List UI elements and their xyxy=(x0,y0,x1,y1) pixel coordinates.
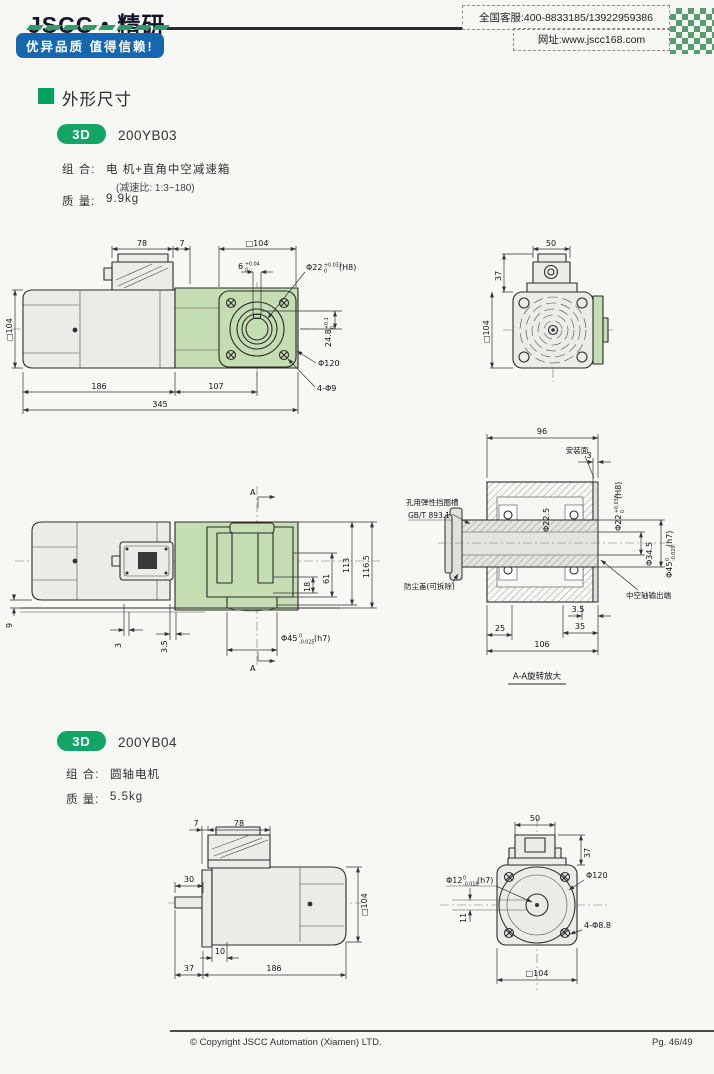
mass-label: 质 量: xyxy=(62,193,95,209)
dim-bolt-holes: 4-Φ8.8 xyxy=(584,921,611,930)
drawing-yb03-top: A A 18 61 113 116.5 9 3 3.5 Φ45 0 -0.025 xyxy=(5,470,390,700)
drawing-yb04-front: 50 37 Φ12 0 -0.018 (h7) Φ120 4-Φ8.8 11 □… xyxy=(430,812,680,1010)
dim-sq104: □104 xyxy=(526,969,549,978)
mass-value: 9.9kg xyxy=(106,193,139,205)
dim-10: 10 xyxy=(215,947,225,956)
dim-keyway: 6 xyxy=(238,262,243,271)
badge-3d: 3D xyxy=(57,731,106,751)
mass-label: 质 量: xyxy=(66,791,99,807)
copyright-text: © Copyright JSCC Automation (Xiamen) LTD… xyxy=(190,1037,382,1048)
model-name: 200YB03 xyxy=(118,128,177,143)
svg-text:0: 0 xyxy=(324,269,327,275)
dim-61: 61 xyxy=(322,574,331,584)
dim-sq104-left: □104 xyxy=(5,318,14,341)
svg-text:+0.04: +0.04 xyxy=(245,262,260,268)
badge-3d: 3D xyxy=(57,124,106,144)
svg-text:0: 0 xyxy=(463,876,466,882)
combo-value: 电 机+直角中空减速箱 xyxy=(106,161,230,177)
dim-30: 30 xyxy=(184,875,194,884)
dim-34-5: Φ34.5 xyxy=(645,542,654,566)
dim-3: 3 xyxy=(586,451,591,460)
svg-text:(h7): (h7) xyxy=(665,531,674,547)
dim-key-height: 24.8 +0.1 0 xyxy=(324,317,336,347)
checkerboard-pattern xyxy=(670,8,714,54)
mass-value: 5.5kg xyxy=(110,791,143,803)
section-mark-a-top: A xyxy=(250,488,256,497)
section-bullet xyxy=(38,88,54,104)
datasheet-page: JSCC・精研 优异品质 值得信赖! 全国客服:400-8833185/1392… xyxy=(0,0,714,1074)
dim-11: 11 xyxy=(459,913,468,923)
dim-113: 113 xyxy=(342,558,351,573)
footer-rule xyxy=(170,1030,714,1032)
svg-text:(h7): (h7) xyxy=(314,634,330,643)
dim-50: 50 xyxy=(530,814,540,823)
svg-text:0: 0 xyxy=(665,558,671,561)
hotline-box: 全国客服:400-8833185/13922959386 xyxy=(462,5,670,30)
dim-3-5: 3.5 xyxy=(572,605,585,614)
dim-bore: Φ22 xyxy=(306,263,322,272)
dim-37: 37 xyxy=(184,964,194,973)
dim-107: 107 xyxy=(208,382,223,391)
svg-text:-0.025: -0.025 xyxy=(299,640,314,646)
dim-flange-dia: Φ120 xyxy=(318,359,340,368)
dim-37: 37 xyxy=(583,848,592,858)
brand-dashes xyxy=(28,25,168,30)
dim-flange-dia: Φ120 xyxy=(586,871,608,880)
dim-3-5: 3.5 xyxy=(160,640,169,653)
dim-7: 7 xyxy=(179,239,184,248)
dim-sq104-top: □104 xyxy=(246,239,269,248)
dim-37: 37 xyxy=(494,271,503,281)
drawing-yb03-side: 78 7 □104 6 +0.04 0 Φ22 +0.033 0 (H8) 24… xyxy=(5,232,375,417)
section-mark-a-bottom: A xyxy=(250,664,256,673)
dim-186: 186 xyxy=(91,382,106,391)
dim-out-h7: Φ45 0 -0.025 (h7) xyxy=(665,531,677,578)
dim-shaft: Φ12 xyxy=(446,876,462,885)
dim-345: 345 xyxy=(152,400,167,409)
drawing-yb03-rear: 50 37 □104 xyxy=(460,232,640,417)
dim-186: 186 xyxy=(266,964,281,973)
dim-22-5: Φ22.5 xyxy=(542,508,551,532)
combo-label: 组 合: xyxy=(66,766,99,782)
svg-text:+0.1: +0.1 xyxy=(324,317,330,329)
svg-text:Φ45: Φ45 xyxy=(665,562,674,578)
label-circlip-1: 孔用弹性挡圈槽 xyxy=(406,497,459,507)
dim-96: 96 xyxy=(537,427,547,436)
ratio-note: (减速比: 1:3~180) xyxy=(116,179,195,194)
combo-value: 圆轴电机 xyxy=(110,766,160,782)
svg-text:(h7): (h7) xyxy=(477,876,493,885)
dim-78: 78 xyxy=(137,239,147,248)
svg-text:0: 0 xyxy=(245,268,248,274)
svg-text:(H8): (H8) xyxy=(614,482,623,499)
slogan-banner: 优异品质 值得信赖! xyxy=(16,33,164,58)
drawing-yb04-side: 7 78 30 10 37 186 □104 xyxy=(165,812,425,1000)
svg-text:24.8: 24.8 xyxy=(324,329,333,347)
dim-18: 18 xyxy=(303,582,312,592)
dim-sq104: □104 xyxy=(360,893,369,916)
label-mount-face: 安装面 xyxy=(566,445,589,455)
dim-116-5: 116.5 xyxy=(362,555,371,578)
dim-78: 78 xyxy=(234,819,244,828)
header-rule xyxy=(158,27,462,30)
dim-50: 50 xyxy=(546,239,556,248)
dim-3: 3 xyxy=(114,643,123,648)
svg-text:0: 0 xyxy=(299,634,302,640)
drawing-aa-section: 96 安装面 3 孔用弹性挡圈槽 GB/T 893.1 防尘盖(可拆除) Φ22… xyxy=(400,420,714,700)
model-name: 200YB04 xyxy=(118,735,177,750)
dim-7: 7 xyxy=(193,819,198,828)
svg-text:0: 0 xyxy=(620,510,626,513)
dim-106: 106 xyxy=(534,640,549,649)
label-dust-cover: 防尘盖(可拆除) xyxy=(404,581,455,591)
dim-25: 25 xyxy=(495,624,505,633)
dim-9: 9 xyxy=(5,623,14,628)
dim-sq104: □104 xyxy=(482,320,491,343)
website-box: 网址:www.jscc168.com xyxy=(513,28,670,51)
label-circlip-2: GB/T 893.1 xyxy=(408,511,450,520)
dim-35: 35 xyxy=(575,622,585,631)
svg-text:(H8): (H8) xyxy=(339,263,356,272)
combo-label: 组 合: xyxy=(62,161,95,177)
page-number: Pg. 46/49 xyxy=(652,1037,693,1048)
dim-bolt-holes: 4-Φ9 xyxy=(317,384,336,393)
section-title: 外形尺寸 xyxy=(62,86,132,110)
dim-shaft: Φ45 xyxy=(281,634,297,643)
dim-bore-h8: Φ22 +0.033 0 (H8) xyxy=(614,482,626,531)
label-hollow-shaft: 中空轴输出端 xyxy=(626,590,671,600)
caption-aa: A-A旋转放大 xyxy=(513,671,562,682)
svg-text:0: 0 xyxy=(330,326,336,329)
svg-text:Φ22: Φ22 xyxy=(614,515,623,531)
